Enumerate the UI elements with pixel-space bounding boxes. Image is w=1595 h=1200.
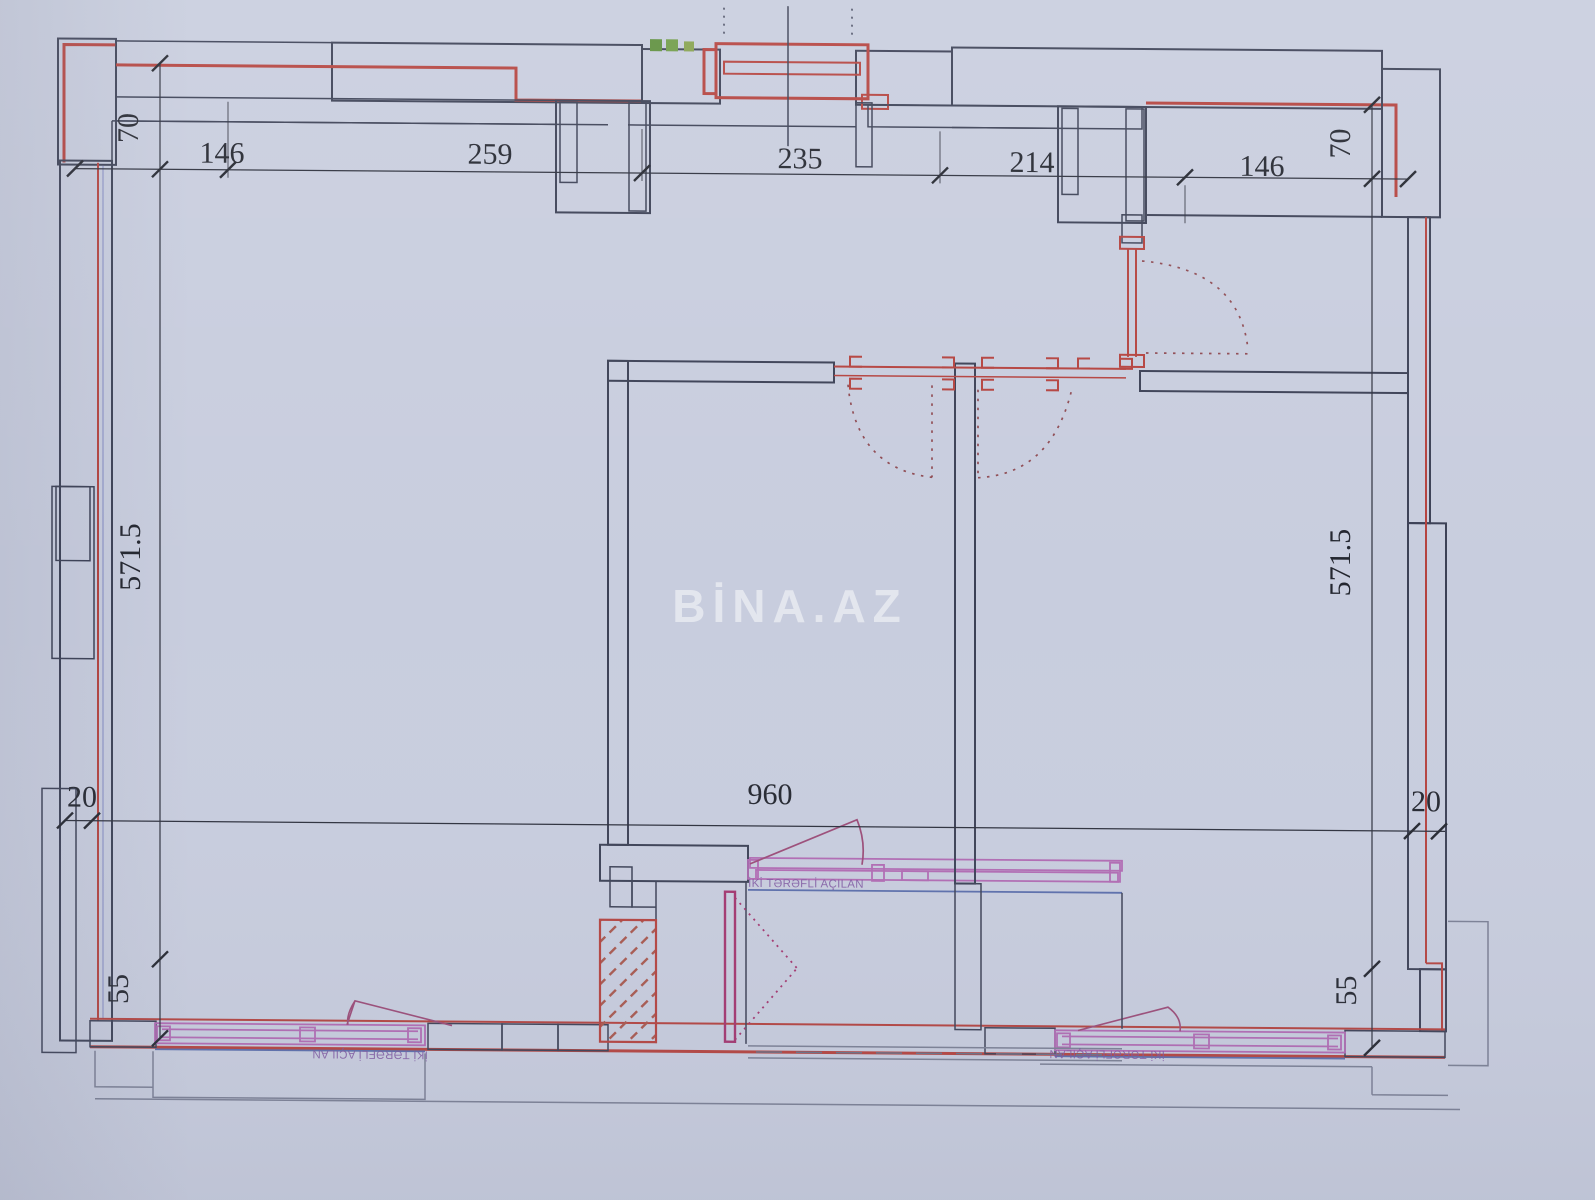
floor-plan-photo: 146 259 235 214 146 70 70 571.5 571.5 20… — [0, 0, 1595, 1200]
dim-146-right: 146 — [1240, 150, 1285, 183]
vent-shaft — [600, 920, 656, 1042]
dim-259: 259 — [468, 138, 513, 171]
window-label-center: İKİ TƏRƏFLİ AÇILAN — [748, 877, 864, 891]
dim-70-right: 70 — [1324, 128, 1357, 158]
floor-plan-drawing: 146 259 235 214 146 70 70 571.5 571.5 20… — [0, 0, 1595, 1200]
dim-20-left: 20 — [67, 781, 97, 814]
dim-146-left: 146 — [200, 137, 245, 170]
dim-214: 214 — [1010, 146, 1055, 179]
dim-20-right: 20 — [1411, 785, 1441, 818]
dim-70-left: 70 — [112, 113, 145, 143]
dim-235: 235 — [778, 142, 823, 175]
dim-571-right: 571.5 — [1324, 529, 1357, 597]
dim-55-right: 55 — [1330, 975, 1363, 1005]
window-label-bottom-left: İKİ TƏRƏFLİ AÇILAN — [312, 1047, 428, 1061]
dim-960: 960 — [748, 778, 793, 811]
dim-55-left: 55 — [102, 974, 135, 1004]
watermark: BİNA.AZ — [672, 580, 908, 632]
window-label-bottom-right: İKİ TƏRƏFLİ AÇILAN — [1049, 1047, 1165, 1061]
dim-571-left: 571.5 — [114, 523, 147, 591]
